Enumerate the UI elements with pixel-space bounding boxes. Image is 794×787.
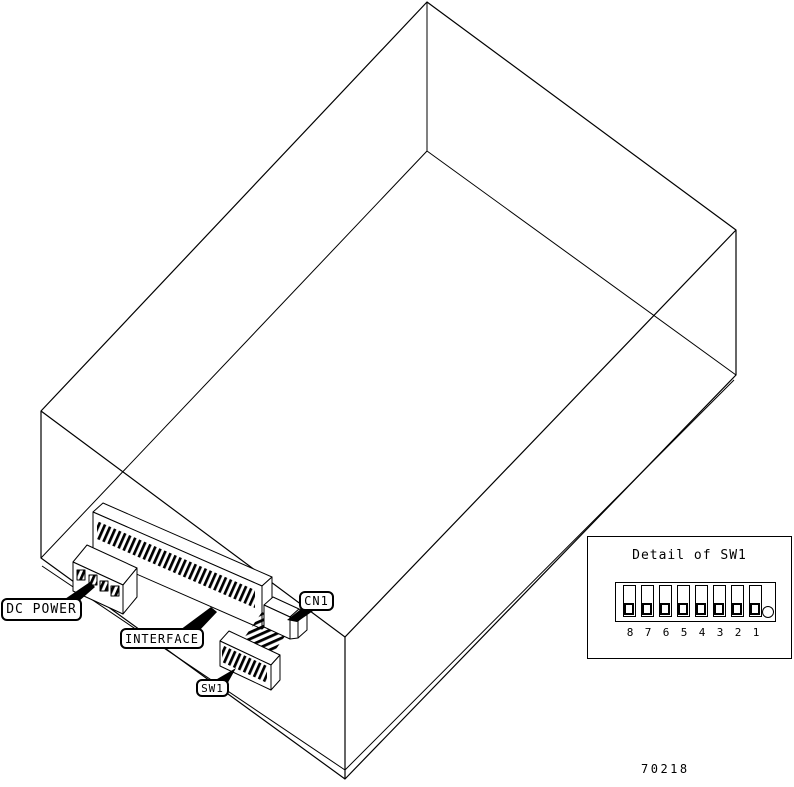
cn1-callout-label: CN1 [304, 594, 329, 608]
dip-position-number: 8 [620, 626, 640, 639]
dip-handle-3 [714, 603, 724, 615]
chassis-hidden-edges [41, 2, 736, 558]
isometric-device-drawing [0, 0, 794, 787]
detail-panel-title: Detail of SW1 [588, 548, 791, 563]
dip-handle-2 [732, 603, 742, 615]
dc-power-callout: DC POWER [1, 598, 82, 621]
dip-switch-6 [659, 585, 672, 617]
sw1-callout-label: SW1 [201, 682, 224, 695]
dip-switch-4 [695, 585, 708, 617]
dip-position-number: 3 [710, 626, 730, 639]
dip-position-number: 4 [692, 626, 712, 639]
dip-switch-2 [731, 585, 744, 617]
dip-switch-8 [623, 585, 636, 617]
sw1-callout: SW1 [196, 679, 229, 697]
dip-handle-6 [660, 603, 670, 615]
dip-switch-1 [749, 585, 762, 617]
interface-callout-label: INTERFACE [125, 632, 199, 646]
technical-diagram-page: DC POWER INTERFACE CN1 SW1 Detail of SW1… [0, 0, 794, 787]
dip-handle-4 [696, 603, 706, 615]
dip-position-number: 7 [638, 626, 658, 639]
interface-callout: INTERFACE [120, 628, 204, 649]
dip-switch-body [615, 582, 776, 622]
dip-switch-7 [641, 585, 654, 617]
dip-handle-7 [642, 603, 652, 615]
dip-switch-3 [713, 585, 726, 617]
figure-number: 70218 [641, 762, 690, 776]
dip-position-number: 1 [746, 626, 766, 639]
sw1-detail-panel: Detail of SW1 8 7 6 5 4 3 2 1 [587, 536, 792, 659]
dc-power-callout-label: DC POWER [6, 602, 77, 617]
cn1-callout: CN1 [299, 591, 334, 611]
dip-orientation-circle [762, 606, 774, 618]
dip-handle-5 [678, 603, 688, 615]
dip-position-number: 6 [656, 626, 676, 639]
dip-position-number: 2 [728, 626, 748, 639]
dip-position-number: 5 [674, 626, 694, 639]
chassis-outline [41, 2, 736, 779]
dip-switch-5 [677, 585, 690, 617]
dip-handle-8 [624, 603, 634, 615]
dip-handle-1 [750, 603, 760, 615]
